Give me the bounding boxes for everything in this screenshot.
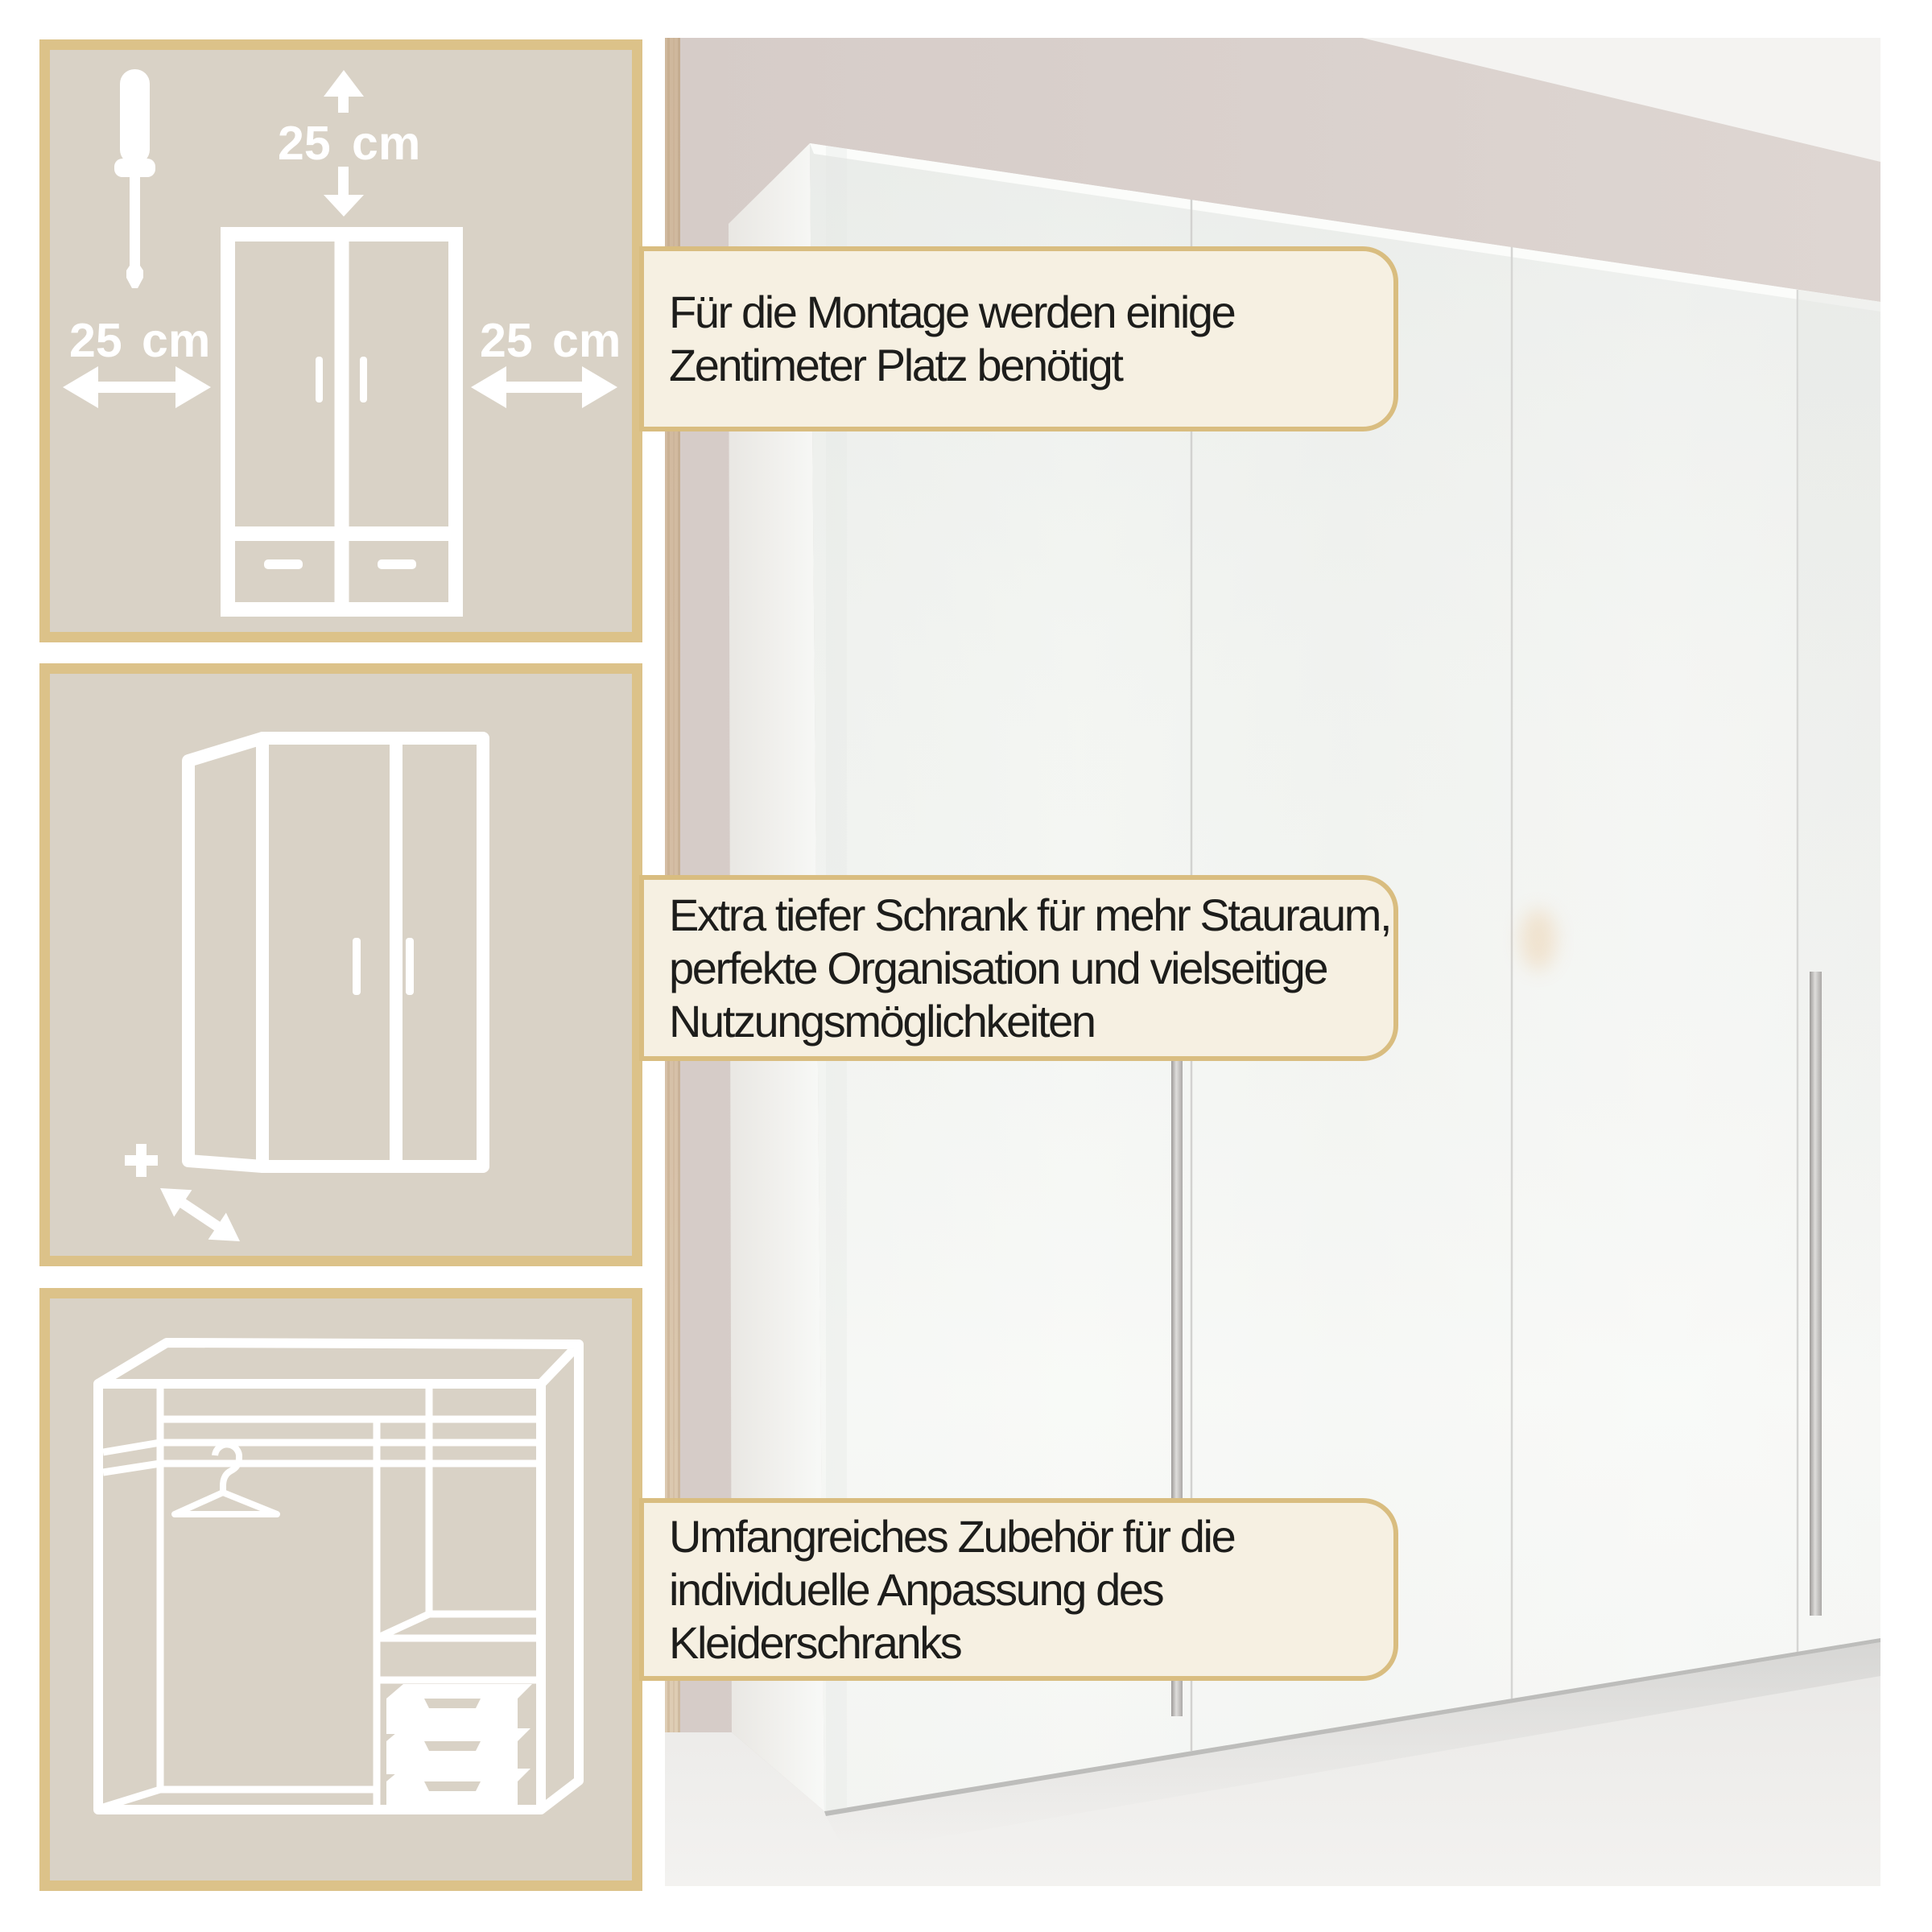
svg-text:cm: cm — [352, 117, 420, 170]
svg-text:cm: cm — [552, 314, 621, 367]
svg-text:25: 25 — [69, 314, 122, 367]
svg-text:cm: cm — [142, 314, 210, 367]
svg-text:25: 25 — [278, 117, 331, 170]
svg-text:25: 25 — [480, 314, 533, 367]
